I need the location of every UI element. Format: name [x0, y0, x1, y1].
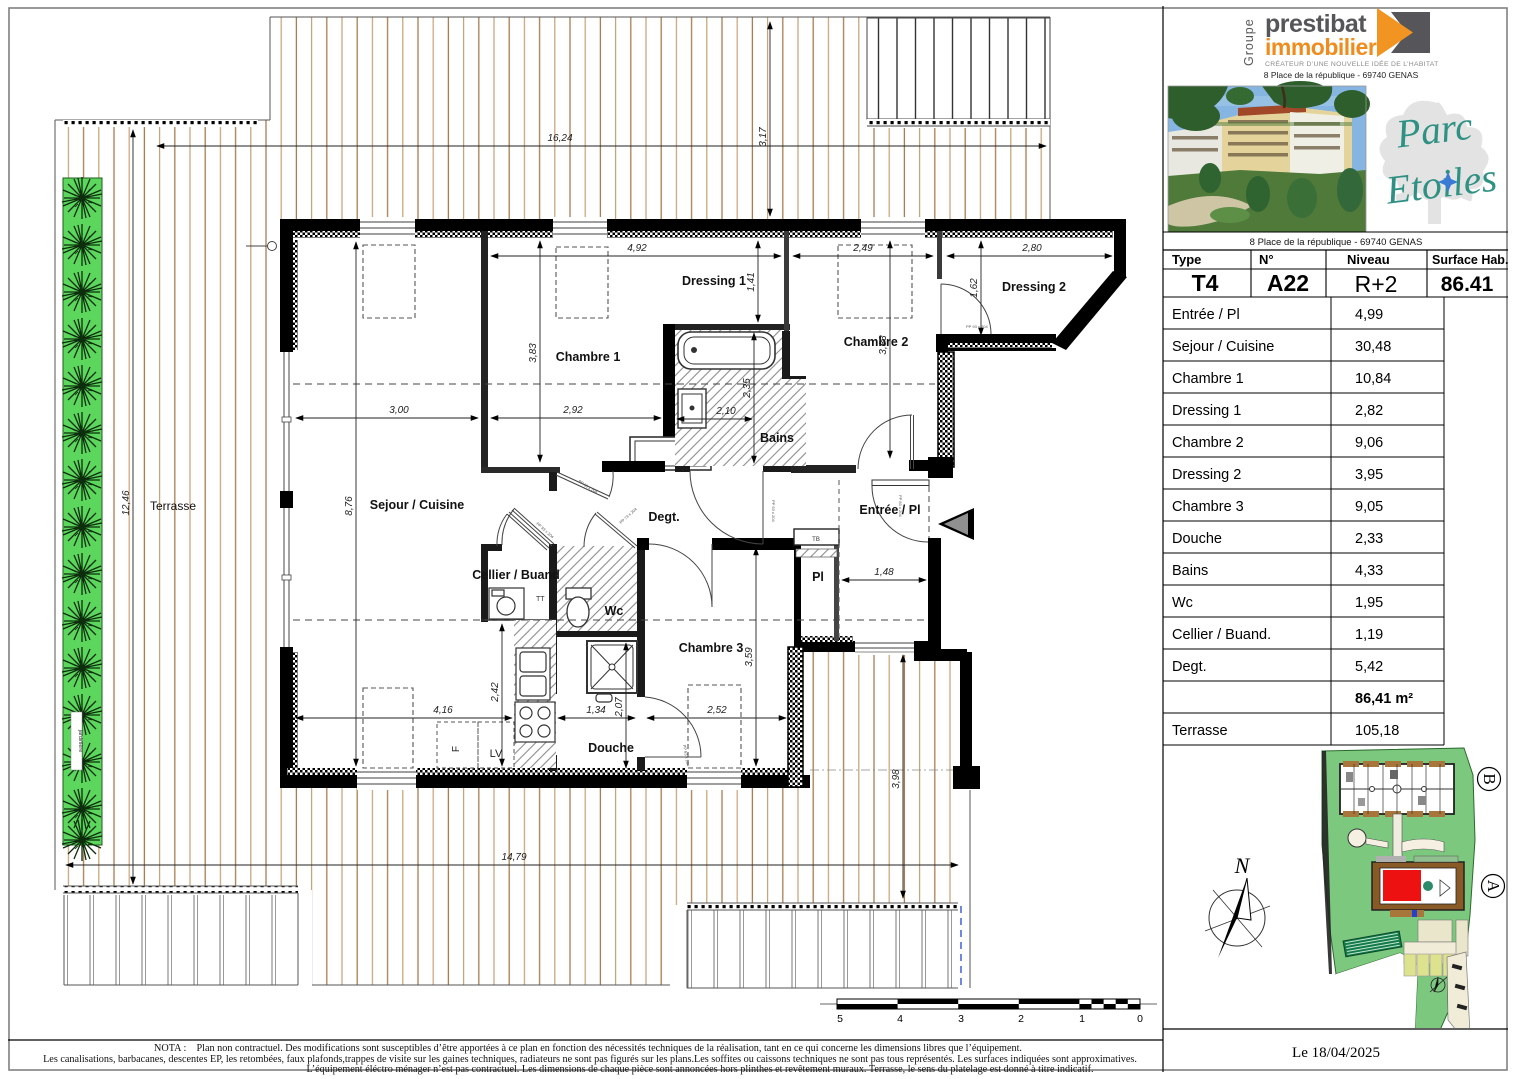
svg-text:105,18: 105,18: [1355, 723, 1399, 739]
svg-text:4,16: 4,16: [433, 705, 453, 716]
svg-text:5,42: 5,42: [1355, 659, 1383, 675]
svg-text:N°: N°: [1259, 252, 1274, 267]
svg-text:3,98: 3,98: [891, 769, 902, 789]
svg-text:2,80: 2,80: [1021, 243, 1042, 254]
svg-text:R+2: R+2: [1355, 271, 1398, 297]
svg-text:2,49: 2,49: [852, 243, 873, 254]
svg-text:L’équipement éléctro ménager: L’équipement éléctro ménager n’est pas c…: [306, 1064, 1093, 1075]
svg-text:3,59: 3,59: [744, 647, 755, 667]
svg-text:Dressing 1: Dressing 1: [682, 274, 746, 288]
svg-text:PP 93 x 204: PP 93 x 204: [771, 500, 776, 522]
svg-text:TB: TB: [812, 537, 820, 543]
svg-text:1,48: 1,48: [874, 567, 894, 578]
svg-text:A22: A22: [1267, 270, 1309, 296]
svg-text:Le 18/04/2025: Le 18/04/2025: [1292, 1045, 1380, 1061]
svg-text:B: B: [1480, 773, 1499, 784]
svg-text:3,83: 3,83: [528, 343, 539, 363]
svg-text:2,92: 2,92: [562, 405, 583, 416]
svg-text:F: F: [451, 746, 462, 752]
svg-text:T4: T4: [1192, 270, 1219, 296]
svg-text:TT: TT: [536, 596, 545, 603]
svg-text:N: N: [1234, 853, 1251, 878]
svg-text:Chambre 1: Chambre 1: [556, 350, 621, 364]
svg-text:Groupe: Groupe: [1242, 18, 1256, 66]
svg-text:Cellier / Buand: Cellier / Buand: [472, 568, 560, 582]
svg-text:Chambre 3: Chambre 3: [1172, 499, 1244, 515]
svg-text:16,24: 16,24: [547, 133, 572, 144]
svg-text:Entrée / Pl: Entrée / Pl: [1172, 307, 1240, 323]
svg-text:2,07: 2,07: [614, 697, 625, 718]
svg-text:Terrasse: Terrasse: [1172, 723, 1228, 739]
svg-text:2: 2: [1018, 1013, 1024, 1025]
svg-text:4: 4: [897, 1013, 903, 1025]
svg-text:8,76: 8,76: [344, 496, 355, 516]
svg-text:1,34: 1,34: [586, 705, 606, 716]
svg-text:A: A: [1484, 880, 1503, 893]
svg-text:Chambre 2: Chambre 2: [1172, 435, 1244, 451]
svg-text:Entrée / Pl: Entrée / Pl: [859, 503, 920, 517]
svg-text:PP 83 x 204: PP 83 x 204: [898, 495, 903, 517]
svg-text:Chambre 3: Chambre 3: [679, 641, 744, 655]
svg-text:10,84: 10,84: [1355, 371, 1391, 387]
svg-text:Degt.: Degt.: [1172, 659, 1207, 675]
svg-text:3,95: 3,95: [1355, 467, 1383, 483]
svg-text:3,83: 3,83: [878, 335, 889, 355]
svg-text:Wc: Wc: [1172, 595, 1193, 611]
svg-text:9,05: 9,05: [1355, 499, 1383, 515]
svg-text:CRÉATEUR D’UNE NOUVELLE IDÉE D: CRÉATEUR D’UNE NOUVELLE IDÉE DE L’HABITA…: [1265, 59, 1439, 68]
svg-text:Dressing 2: Dressing 2: [1002, 280, 1066, 294]
svg-text:immobilier: immobilier: [1265, 34, 1377, 60]
svg-text:1: 1: [1079, 1013, 1085, 1025]
svg-text:Sejour / Cuisine: Sejour / Cuisine: [370, 498, 465, 512]
svg-text:1,19: 1,19: [1355, 627, 1383, 643]
svg-text:Terrasse: Terrasse: [150, 499, 196, 513]
svg-text:Dressing 2: Dressing 2: [1172, 467, 1241, 483]
svg-text:4,92: 4,92: [627, 243, 647, 254]
svg-text:5: 5: [837, 1013, 843, 1025]
svg-text:Wc: Wc: [605, 604, 624, 618]
svg-text:12,46: 12,46: [121, 490, 132, 515]
svg-text:Chambre 2: Chambre 2: [844, 335, 909, 349]
svg-text:Douche: Douche: [1172, 531, 1222, 547]
svg-text:LV: LV: [490, 748, 503, 760]
svg-text:PP 93 x 204: PP 93 x 204: [966, 324, 988, 329]
svg-text:Bains: Bains: [1172, 563, 1208, 579]
svg-text:Bains: Bains: [760, 431, 794, 445]
svg-text:0: 0: [1137, 1013, 1143, 1025]
svg-text:jardinière: jardinière: [77, 729, 83, 753]
svg-text:9,06: 9,06: [1355, 435, 1383, 451]
svg-text:3: 3: [958, 1013, 964, 1025]
svg-text:Cellier / Buand.: Cellier / Buand.: [1172, 627, 1271, 643]
svg-text:2,42: 2,42: [490, 682, 501, 703]
svg-text:30,48: 30,48: [1355, 339, 1391, 355]
svg-text:2,33: 2,33: [1355, 531, 1383, 547]
svg-text:Pl: Pl: [812, 570, 824, 584]
svg-text:8 Place de la république - 697: 8 Place de la république - 69740 GENAS: [1264, 70, 1419, 80]
svg-text:4,99: 4,99: [1355, 307, 1383, 323]
svg-text:2,82: 2,82: [1355, 403, 1383, 419]
svg-text:14,79: 14,79: [501, 852, 526, 863]
svg-text:2,10: 2,10: [715, 406, 736, 417]
svg-text:Dressing 1: Dressing 1: [1172, 403, 1241, 419]
svg-text:Surface Hab.: Surface Hab.: [1432, 253, 1508, 267]
svg-text:Degt.: Degt.: [648, 510, 679, 524]
svg-text:2,52: 2,52: [706, 705, 727, 716]
svg-text:86,41 m²: 86,41 m²: [1355, 691, 1413, 707]
svg-text:Parc: Parc: [1393, 103, 1475, 157]
svg-text:1,95: 1,95: [1355, 595, 1383, 611]
svg-text:3,17: 3,17: [758, 127, 769, 147]
svg-text:4,33: 4,33: [1355, 563, 1383, 579]
svg-text:1,41: 1,41: [746, 272, 757, 291]
svg-text:8 Place de la république - 697: 8 Place de la république - 69740 GENAS: [1250, 237, 1423, 248]
svg-text:3,00: 3,00: [389, 405, 409, 416]
svg-text:Niveau: Niveau: [1347, 252, 1390, 267]
svg-text:Type: Type: [1172, 252, 1201, 267]
svg-text:Douche: Douche: [588, 741, 634, 755]
svg-text:2,35: 2,35: [742, 378, 753, 399]
svg-text:86.41: 86.41: [1441, 273, 1494, 296]
svg-text:NOTA : Plan non contractuel: NOTA : Plan non contractuel. Des modific…: [154, 1043, 1022, 1054]
svg-text:Chambre 1: Chambre 1: [1172, 371, 1244, 387]
svg-text:Sejour / Cuisine: Sejour / Cuisine: [1172, 339, 1274, 355]
svg-text:1,62: 1,62: [969, 278, 980, 298]
